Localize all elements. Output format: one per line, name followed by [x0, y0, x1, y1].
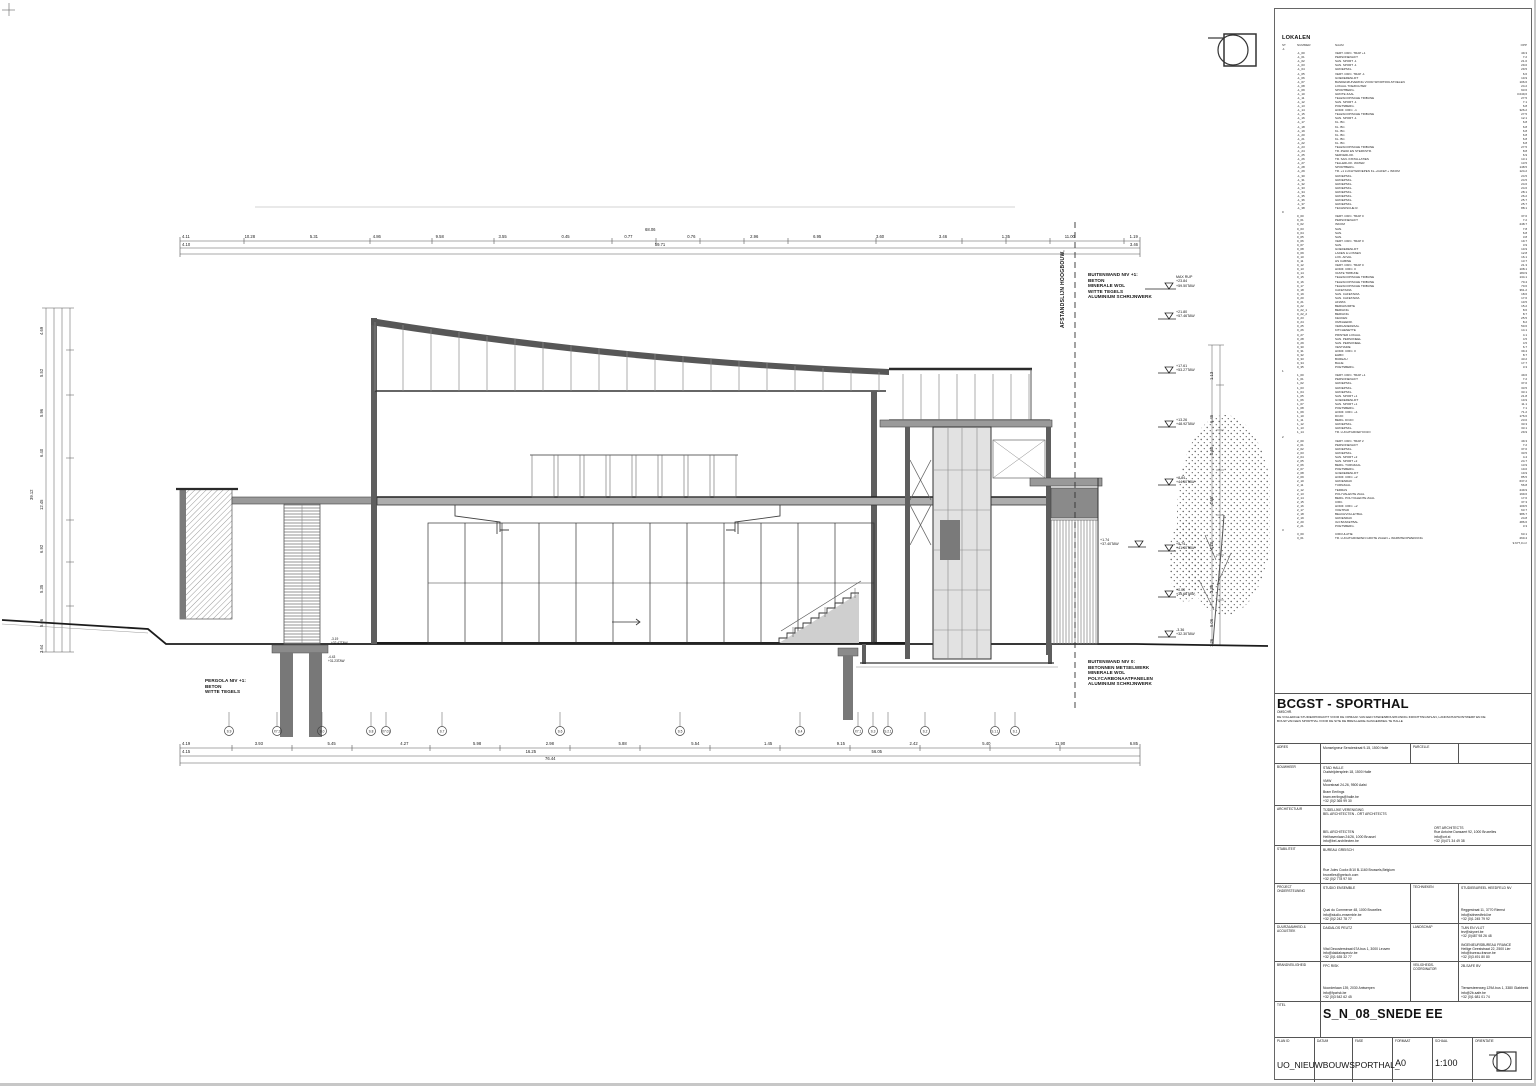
svg-text:X7.1: X7.1 — [855, 729, 862, 733]
svg-text:S.1.1: S.1.1 — [991, 729, 999, 733]
technieken-label: TECHNIEKEN — [1411, 884, 1459, 923]
parcelle-value — [1459, 744, 1531, 763]
lokalen-list: LOKALEN ST NUMMER NAAM OPP -1 — [1282, 35, 1527, 545]
dim-left-2: 5.96 — [39, 409, 44, 417]
dim-bottom-row2: 4.1516.2556.05 — [182, 749, 882, 754]
architect-label: ARCHITECTUUR — [1275, 806, 1321, 845]
planid-value: UO_NIEUWBOUWSPORTHAL_ — [1277, 1060, 1312, 1070]
svg-text:S.7: S.7 — [440, 729, 445, 733]
svg-text:S.8: S.8 — [369, 729, 374, 733]
level-marker-mid: +1.74 +37.40TAW — [1100, 538, 1119, 547]
project-title: BCGST - SPORTHAL — [1277, 696, 1529, 711]
svg-text:S.3: S.3 — [871, 729, 876, 733]
adres-label: ADRES — [1275, 744, 1321, 763]
title-panel: LOKALEN ST NUMMER NAAM OPP -1 — [1274, 8, 1532, 1080]
planid-label: PLAN ID — [1277, 1040, 1312, 1044]
dim-left-1: 5.52 — [39, 369, 44, 377]
svg-text:S.2.1: S.2.1 — [884, 729, 892, 733]
dim-top-row1: 4.1110.285.314.869.583.550.450.770.762.9… — [182, 234, 1138, 239]
dim-left-total: 39.12 — [29, 490, 34, 500]
titleblock-brand-row: BRANDVEILIGHEID FPC RISK Noorderlaan 139… — [1275, 962, 1531, 1002]
titleblock-architect-row: ARCHITECTUUR TIJDELIJKE VERENIGING BEL A… — [1275, 806, 1531, 846]
stabiliteit-addr: Rue Jules Cockx 8/10 B-1160 Brussels,Bel… — [1323, 868, 1529, 881]
level-marker-5: +5.74+41.40TAW — [1176, 542, 1195, 551]
architect-tv: TIJDELIJKE VERENIGING BEL ARCHITECTEN - … — [1323, 808, 1529, 816]
duurzaamheid-addr: Vital Decosterstraat 67A bus 1, 3000 Leu… — [1323, 947, 1408, 960]
architect-right: ORT ARCHITECTS Rue Antoine Dansaert 92, … — [1434, 826, 1529, 843]
annotation-pergola: PERGOLA NIV +1: BETON WITTE TEGELS — [205, 678, 246, 695]
dim-right-4: 4.10 — [1209, 542, 1214, 550]
titel-label: TITEL — [1275, 1002, 1321, 1037]
duurzaamheid-name: DAIDALOS PEUTZ — [1323, 926, 1408, 930]
dim-top-total: 68.06 — [645, 227, 655, 232]
tower-elevator — [880, 420, 1052, 659]
dim-left-8: 3.64 — [39, 645, 44, 653]
svg-text:S.5: S.5 — [678, 729, 683, 733]
fase-label: FASE — [1355, 1040, 1390, 1044]
titleblock-projectondersteuning-row: PROJECT ONDERSTEUNING STUDIO ENSEMBLE Qu… — [1275, 884, 1531, 924]
bottom-dimension-lines — [180, 744, 1140, 766]
level-marker-2: +17.61+53.27TAW — [1176, 364, 1195, 373]
titleblock-duurzaamheid-row: DUURZAAMHEID & ACOUSTIEK DAIDALOS PEUTZ … — [1275, 924, 1531, 962]
dim-left-5: 6.92 — [39, 545, 44, 553]
level-marker-7: -3.36+32.30TAW — [1176, 628, 1195, 637]
sheet-logo-icon — [1208, 34, 1256, 66]
parcelle-label: PARCELLE — [1411, 744, 1459, 763]
title-block: BCGST - SPORTHAL OMSCHR. DE VOLLEDIGE ST… — [1275, 693, 1531, 1080]
titleblock-bouwheer-row: BOUWHEER STAD HALLE Oudstrijdersplein 18… — [1275, 764, 1531, 806]
level-marker-0: MAX RUP+23.84+59.50TAW — [1176, 275, 1195, 288]
orientation-icon — [1489, 1049, 1519, 1075]
lokalen-rows: -1 -1_00 VERT. CIRC. TRAP +1 49.3 — [1282, 47, 1527, 545]
project-description: DE VOLLEDIGE STUDIEOPDRACHT VOOR DE OPMA… — [1277, 716, 1529, 723]
projectondersteuning-name: STUDIO ENSEMBLE — [1323, 886, 1408, 890]
dim-bottom-total: 76.44 — [545, 756, 555, 761]
level-marker-4: +8.84+44.50TAW — [1176, 476, 1195, 485]
formaat-value: A0 — [1395, 1058, 1430, 1068]
brandveiligheid-label: BRANDVEILIGHEID — [1275, 962, 1321, 1001]
top-dimension-lines — [180, 237, 1140, 257]
interior-glazing — [428, 523, 874, 643]
foundation-piers-left — [272, 645, 328, 737]
stabiliteit-name: BUREAU GREISCH — [1323, 848, 1529, 852]
level-marker-6: +0.00+35.66TAW — [1176, 588, 1195, 597]
svg-text:S.9: S.9 — [227, 729, 232, 733]
pergola-and-stair — [232, 497, 375, 644]
footing-mark-1: -3.19 +32.47TAW — [331, 637, 348, 646]
brandveiligheid-name: FPC RISK — [1323, 964, 1408, 968]
projectondersteuning-label: PROJECT ONDERSTEUNING — [1275, 884, 1321, 923]
dim-left-0: 4.69 — [39, 327, 44, 335]
dim-left-4: 12.45 — [39, 500, 44, 510]
grid-bubbles: S.9 X7.2 S.0 S.8 X7.01 S.7 S.6 S.5 S.4 X… — [225, 712, 1020, 736]
dim-right-0: 1.13 — [1209, 372, 1214, 380]
formaat-label: FORMAAT — [1395, 1040, 1430, 1044]
bouwheer-value: STAD HALLE Oudstrijdersplein 18, 1500 Ha… — [1323, 766, 1529, 787]
dim-right-7: 1.26 — [1209, 639, 1214, 647]
level-marker-1: +21.80+57.46TAW — [1176, 310, 1195, 319]
svg-text:X7.01: X7.01 — [382, 729, 391, 733]
divider-panels — [530, 455, 738, 497]
titleblock-project-row: BCGST - SPORTHAL OMSCHR. DE VOLLEDIGE ST… — [1275, 694, 1531, 744]
dim-left-6: 5.35 — [39, 585, 44, 593]
svg-text:S.6: S.6 — [558, 729, 563, 733]
level-marker-3: +13.26+48.92TAW — [1176, 418, 1195, 427]
drawing-title: S_N_08_SNEDE EE — [1323, 1007, 1529, 1021]
veiligheidscoordinator-name: 2B-SAFE BV — [1461, 964, 1529, 968]
dim-right-1: 6.45 — [1209, 415, 1214, 423]
titleblock-titel-row: TITEL S_N_08_SNEDE EE — [1275, 1002, 1531, 1038]
bouwheer-label: BOUWHEER — [1275, 764, 1321, 805]
titleblock-bottom-row: PLAN ID UO_NIEUWBOUWSPORTHAL_ DATUM FASE… — [1275, 1038, 1531, 1080]
duurzaamheid-label: DUURZAAMHEID & ACOUSTIEK — [1275, 924, 1321, 962]
landschap-content: TUIN EN VLIJT tev@skynet.be +32 (0)487 9… — [1459, 924, 1531, 962]
tree — [1169, 415, 1270, 644]
bouwheer-contact: Bram Eerlings bram.eerlings@halle.be +32… — [1323, 790, 1529, 803]
stabiliteit-label: STABILITEIT — [1275, 846, 1321, 883]
dim-right-3: 4.65 — [1209, 497, 1214, 505]
svg-text:S.2: S.2 — [923, 729, 928, 733]
landschap-label: LANDSCHAP — [1411, 924, 1459, 962]
level-markers — [1128, 283, 1176, 637]
left-dimension-lines — [42, 308, 74, 652]
projectondersteuning-addr: Quai du Commerce 48, 1000 Bruxelles info… — [1323, 908, 1408, 921]
basketball-hoop-icon — [455, 505, 780, 534]
lokalen-row: 9.677,0 m² — [1282, 541, 1527, 545]
veiligheidscoordinator-label: VEILIGHEIDS- COÖRDINATOR — [1411, 962, 1459, 1001]
door-arrow-icon — [612, 619, 640, 625]
dim-right-6: 5.06 — [1209, 619, 1214, 627]
left-annex — [176, 489, 238, 619]
svg-text:X7.2: X7.2 — [274, 729, 281, 733]
dim-right-2: 0.60 — [1209, 447, 1214, 455]
svg-text:S.4: S.4 — [798, 729, 803, 733]
datum-label: DATUM — [1317, 1040, 1350, 1044]
titleblock-stabiliteit-row: STABILITEIT BUREAU GREISCH Rue Jules Coc… — [1275, 846, 1531, 884]
dim-left-7: 5.06 — [39, 619, 44, 627]
architect-left: BEL ARCHITECTEN Helihavenlaan 24/26, 100… — [1323, 830, 1418, 843]
dim-top-row2: 4.1059.713.46 — [182, 242, 1138, 247]
technieken-addr: Reggestraat 11, 3770 Riemst info@sbheedf… — [1461, 908, 1529, 921]
dim-right-5: 3.35 — [1209, 585, 1214, 593]
technieken-name: STUDIEBUREEL HEEDFELD NV — [1461, 886, 1529, 890]
crop-mark — [2, 3, 15, 16]
drawing-sheet: S.9 X7.2 S.0 S.8 X7.01 S.7 S.6 S.5 S.4 X… — [0, 0, 1534, 1083]
titleblock-adres-row: ADRES Monseigneur Senciestraat 9-15, 150… — [1275, 744, 1531, 764]
dim-left-3: 6.40 — [39, 449, 44, 457]
brandveiligheid-addr: Noorderlaan 139, 2030 Antwerpen info@fpc… — [1323, 986, 1408, 999]
lokalen-title: LOKALEN — [1282, 35, 1527, 41]
annotation-afstandslijn: AFSTANDSLIJN HOOGBOUW, — [1060, 250, 1066, 328]
veiligheidscoordinator-addr: Tiensesteenweg 129A bus 1, 3380 Glabbeek… — [1461, 986, 1529, 999]
hall-structure — [371, 318, 905, 644]
svg-text:S.1: S.1 — [1013, 729, 1018, 733]
svg-text:S.0: S.0 — [320, 729, 325, 733]
schaal-label: SCHAAL — [1435, 1040, 1470, 1044]
section-drawing: S.9 X7.2 S.0 S.8 X7.01 S.7 S.6 S.5 S.4 X… — [0, 0, 1270, 1083]
adres-value: Monseigneur Senciestraat 9-15, 1500 Hall… — [1321, 744, 1411, 763]
annotation-buitenwand-niv0: BUITENWAND NIV 0: BETONNEN METSELWERK MI… — [1088, 659, 1153, 687]
schaal-value: 1:100 — [1435, 1058, 1470, 1068]
interior-stair — [779, 581, 861, 643]
annotation-buitenwand-niv1: BUITENWAND NIV +1: BETON MINERALE WOL WI… — [1088, 272, 1152, 300]
dim-bottom-row1: 4.193.935.454.275.982.985.885.541.459.15… — [182, 741, 1138, 746]
orientatie-label: ORIENTATIE — [1475, 1040, 1529, 1044]
footing-mark-2: -4.43 +31.23TAW — [328, 655, 345, 664]
